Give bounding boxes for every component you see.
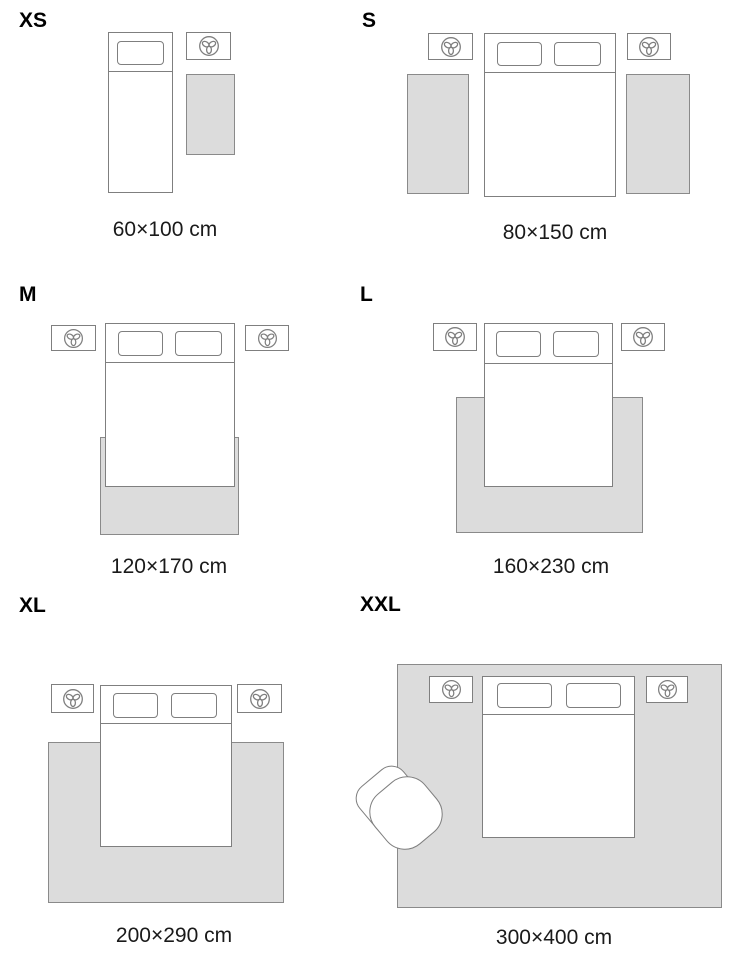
size-dimensions-xxl: 300×400 cm bbox=[496, 927, 612, 948]
plant-icon bbox=[444, 326, 466, 348]
nightstand bbox=[627, 33, 671, 60]
plant-icon bbox=[632, 326, 654, 348]
size-dimensions-l: 160×230 cm bbox=[493, 556, 609, 577]
rug bbox=[186, 74, 235, 155]
plant-icon bbox=[657, 679, 678, 700]
nightstand bbox=[237, 684, 282, 713]
pillow bbox=[113, 693, 158, 718]
double-bed bbox=[100, 685, 232, 847]
rug-left-runner bbox=[407, 74, 469, 194]
plant-icon bbox=[441, 679, 462, 700]
nightstand bbox=[51, 684, 94, 713]
size-dimensions-xl: 200×290 cm bbox=[116, 925, 232, 946]
size-code-xxl: XXL bbox=[360, 594, 401, 615]
nightstand bbox=[621, 323, 665, 351]
double-bed bbox=[484, 323, 613, 487]
pillow bbox=[117, 41, 164, 65]
nightstand bbox=[428, 33, 473, 60]
nightstand bbox=[51, 325, 96, 351]
size-code-xs: XS bbox=[19, 10, 47, 31]
double-bed bbox=[105, 323, 235, 487]
rug-size-guide: XS 60×100 cm S 80×150 cm M bbox=[0, 0, 740, 960]
plant-icon bbox=[63, 328, 84, 349]
size-code-m: M bbox=[19, 284, 37, 305]
plant-icon bbox=[638, 36, 660, 58]
pillow bbox=[497, 42, 542, 66]
double-bed bbox=[482, 676, 635, 838]
plant-icon bbox=[257, 328, 278, 349]
double-bed bbox=[484, 33, 616, 197]
plant-icon bbox=[440, 36, 462, 58]
pillow bbox=[554, 42, 601, 66]
plant-icon bbox=[249, 688, 271, 710]
pillow bbox=[497, 683, 552, 708]
pillow bbox=[118, 331, 163, 356]
pillow bbox=[496, 331, 541, 357]
size-dimensions-s: 80×150 cm bbox=[503, 222, 608, 243]
pillow bbox=[171, 693, 217, 718]
size-code-l: L bbox=[360, 284, 373, 305]
pillow bbox=[175, 331, 222, 356]
size-code-s: S bbox=[362, 10, 376, 31]
pillow bbox=[566, 683, 621, 708]
size-dimensions-m: 120×170 cm bbox=[111, 556, 227, 577]
size-dimensions-xs: 60×100 cm bbox=[113, 219, 218, 240]
nightstand bbox=[245, 325, 289, 351]
plant-icon bbox=[198, 35, 220, 57]
pillow bbox=[553, 331, 599, 357]
single-bed bbox=[108, 32, 173, 193]
plant-icon bbox=[62, 688, 84, 710]
size-code-xl: XL bbox=[19, 595, 46, 616]
nightstand bbox=[433, 323, 477, 351]
nightstand bbox=[429, 676, 473, 703]
nightstand bbox=[646, 676, 688, 703]
rug-right-runner bbox=[626, 74, 690, 194]
nightstand bbox=[186, 32, 231, 60]
